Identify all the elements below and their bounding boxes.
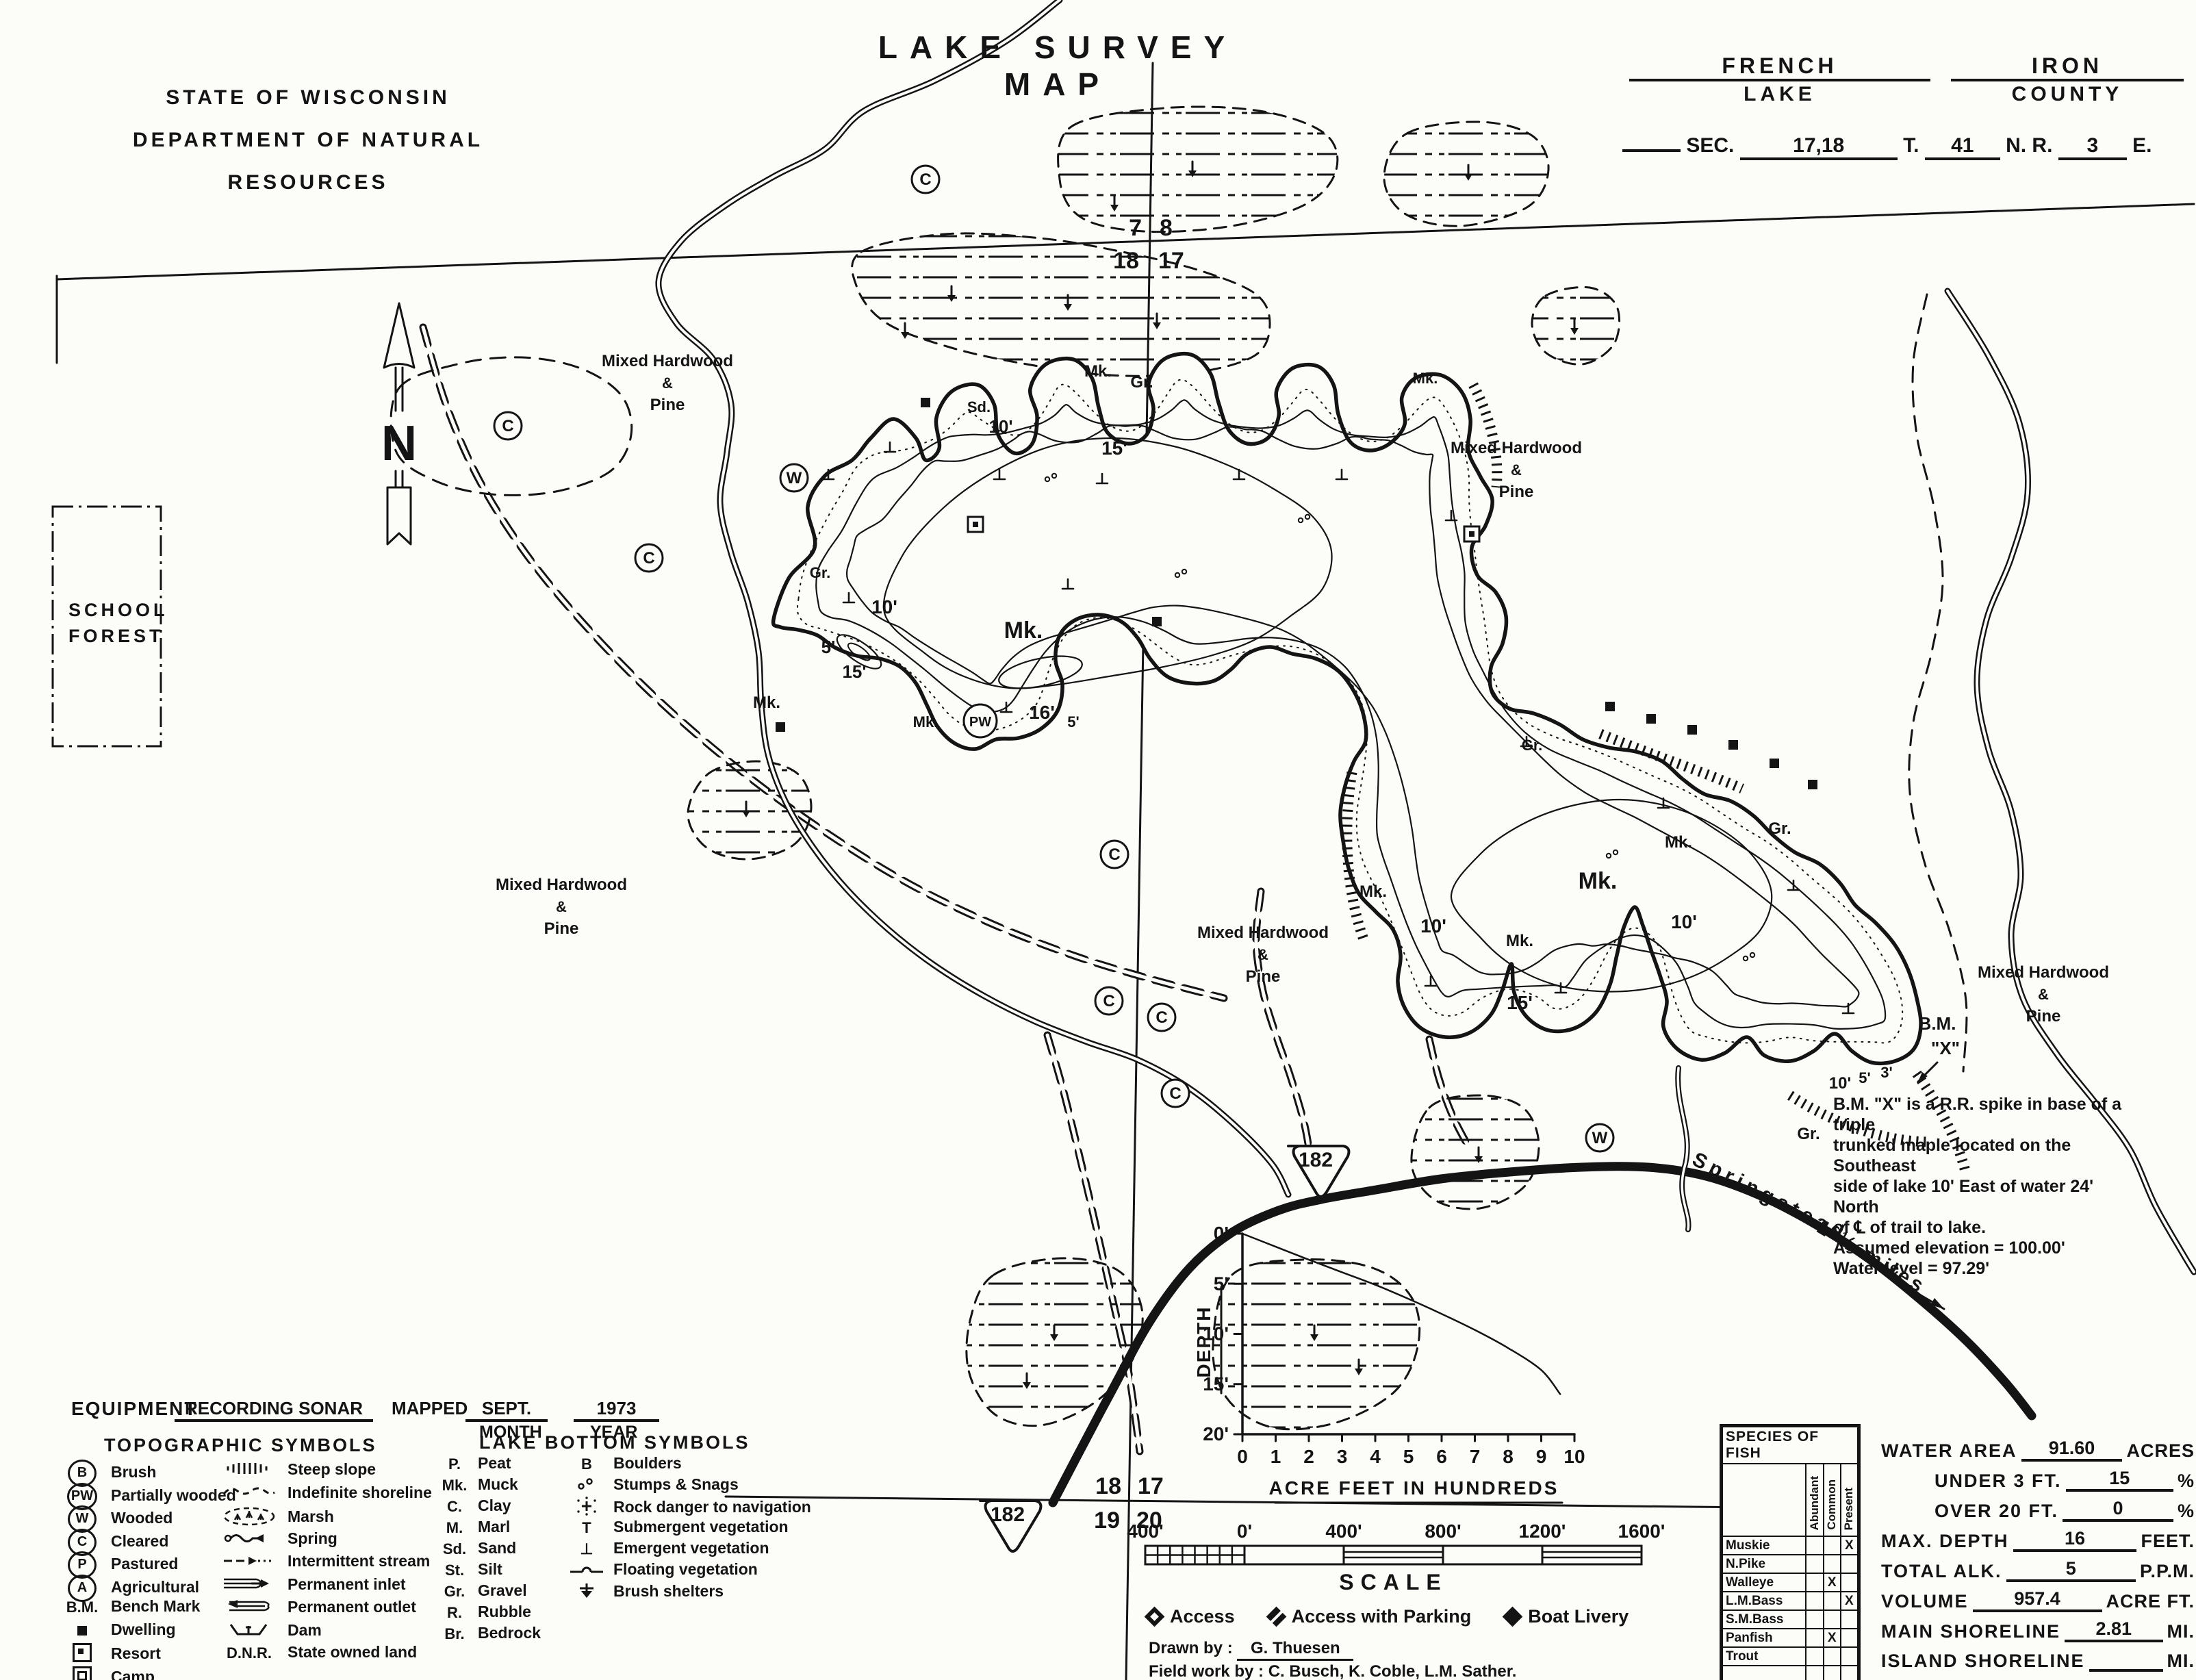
page-title: LAKE SURVEY MAP <box>832 29 1284 103</box>
topo-legend-item: Intermittent stream <box>218 1551 430 1573</box>
spot-label: Mk. <box>1359 882 1387 901</box>
fish-mark <box>1841 1610 1858 1629</box>
stat-label: WATER AREA <box>1881 1440 2017 1462</box>
lake-statistics: WATER AREA91.60ACRESUNDER 3 FT.15%OVER 2… <box>1881 1438 2195 1678</box>
fish-name: Trout <box>1722 1647 1806 1666</box>
landcover-letter: C <box>1169 1084 1181 1103</box>
fish-mark <box>1841 1573 1858 1592</box>
legend-label: Brush shelters <box>613 1582 724 1600</box>
topo-legend-item: Resort <box>60 1643 161 1665</box>
fish-row: MuskieX <box>1722 1536 1858 1555</box>
boulders-icon: B <box>567 1455 607 1473</box>
fish-table-title: SPECIES OF FISH <box>1722 1427 1858 1464</box>
dwelling-icon <box>1808 780 1817 789</box>
bottom-legend-item: C.Clay <box>438 1497 511 1518</box>
indefinite-shoreline-icon <box>218 1483 281 1505</box>
legend-label: Clay <box>478 1497 511 1514</box>
bottom-legend-item: Stumps & Snags <box>567 1475 739 1497</box>
lake-shoreline <box>774 354 1921 1064</box>
section-lines <box>726 1497 1752 1507</box>
benchmark-note-line: B.M. "X" is a R.R. spike in base of a tr… <box>1833 1094 2141 1135</box>
equipment-value: RECORDING SONAR <box>175 1398 373 1422</box>
camp-icon <box>60 1666 104 1680</box>
bottom-legend-item: Sd.Sand <box>438 1539 516 1561</box>
fish-mark <box>1841 1555 1858 1573</box>
r-value: 3 <box>2058 134 2127 160</box>
access-legend-item: Access <box>1145 1606 1235 1627</box>
drawn-by-label: Drawn by : <box>1149 1639 1233 1657</box>
highway-shield-number: 182 <box>1299 1149 1333 1171</box>
spot-label: Mk. <box>1579 868 1618 894</box>
marsh-area <box>1213 1260 1420 1429</box>
spot-label: 5' <box>821 637 836 657</box>
boat-livery-diamond <box>1503 1607 1523 1627</box>
spot-label: Mk. <box>753 693 780 712</box>
stat-label: VOLUME <box>1881 1591 1969 1612</box>
dwelling-icon <box>776 722 785 732</box>
stat-label: OVER 20 FT. <box>1935 1501 2058 1522</box>
bottom-legend-item: Mk.Muck <box>438 1475 518 1497</box>
scale-bar-label: 0' <box>1237 1520 1252 1542</box>
forest-label: Mixed Hardwood <box>1451 439 1582 457</box>
dnr-icon: D.N.R. <box>218 1644 281 1662</box>
permanent-inlet-icon <box>218 1575 281 1596</box>
stat-row: TOTAL ALK.5P.P.M. <box>1881 1558 2195 1582</box>
legend-label: Floating vegetation <box>613 1560 758 1578</box>
stat-value: 957.4 <box>1973 1588 2102 1612</box>
brush-shelters-icon <box>567 1581 607 1603</box>
t-value: 41 <box>1925 134 2000 160</box>
stat-unit: MI. <box>2167 1621 2195 1642</box>
fish-row: Trout <box>1722 1647 1858 1666</box>
stat-unit: MI. <box>2167 1651 2195 1672</box>
fish-mark <box>1824 1536 1841 1555</box>
spot-label: Mk. <box>1665 833 1692 852</box>
forest-label: & <box>1257 946 1268 963</box>
fish-mark <box>1806 1629 1823 1647</box>
fish-mark <box>1806 1592 1823 1610</box>
fish-row: S.M.Bass <box>1722 1610 1858 1629</box>
legend-label: Sand <box>478 1539 516 1557</box>
forest-label: & <box>556 898 567 915</box>
agency-line1: STATE OF WISCONSIN <box>68 77 548 119</box>
resort-icon <box>1469 531 1474 537</box>
topo-legend-item: Indefinite shoreline <box>218 1483 432 1505</box>
bench-mark-icon: B.M. <box>60 1598 104 1616</box>
county-word: COUNTY <box>1951 83 2184 106</box>
topo-legend-title: TOPOGRAPHIC SYMBOLS <box>104 1435 377 1456</box>
stat-label: MAIN SHORELINE <box>1881 1621 2060 1642</box>
bm-map-label: "X" <box>1931 1038 1960 1058</box>
benchmark-note-line: trunked maple located on the Southeast <box>1833 1135 2141 1176</box>
stat-row: MAX. DEPTH16FEET. <box>1881 1528 2195 1552</box>
scale-bar-label: 400' <box>1127 1520 1163 1542</box>
map-canvas: 0'5'10'15'20'012345678910ACRE FEET IN HU… <box>0 0 2196 1680</box>
spot-label: 5' <box>1067 713 1079 730</box>
lake-name: FRENCH <box>1629 53 1930 81</box>
spot-label: 5' <box>1859 1069 1870 1086</box>
legend-label: Peat <box>478 1454 511 1472</box>
stat-row: OVER 20 FT.0% <box>1935 1498 2195 1522</box>
forest-label: & <box>662 374 673 392</box>
fish-empty-row <box>1722 1666 1858 1680</box>
abbr-icon: C. <box>438 1497 471 1516</box>
topo-legend-item: Permanent inlet <box>218 1575 406 1596</box>
topo-legend-item: Camp <box>60 1666 155 1680</box>
fish-mark <box>1841 1647 1858 1666</box>
legend-label: Camp <box>111 1668 155 1680</box>
section-number: 18 <box>1113 248 1139 274</box>
resort-icon <box>60 1643 104 1666</box>
benchmark-note-line: of ℄ of trail to lake. <box>1833 1217 2141 1238</box>
legend-label: Permanent outlet <box>288 1598 416 1616</box>
bottom-legend-item: Floating vegetation <box>567 1560 758 1582</box>
topo-legend-item: D.N.R.State owned land <box>218 1643 417 1665</box>
section-number: 8 <box>1160 215 1173 241</box>
abbr-icon: P. <box>438 1455 471 1473</box>
marsh-area <box>967 1258 1142 1426</box>
dwelling-icon <box>1770 759 1779 768</box>
marsh-arrow-icon <box>901 332 909 339</box>
lake-and-contours <box>774 354 1921 1064</box>
forest-label: Mixed Hardwood <box>1978 963 2109 982</box>
legend-label: Resort <box>111 1644 161 1662</box>
abbr-icon: Gr. <box>438 1582 471 1601</box>
credits: Drawn by : G. Thuesen Field work by : C.… <box>1149 1638 1628 1680</box>
fish-mark: X <box>1841 1536 1858 1555</box>
access-label: Access with Parking <box>1292 1606 1472 1627</box>
stat-unit: FEET. <box>2141 1531 2195 1552</box>
spot-label: 10' <box>1829 1074 1851 1093</box>
benchmark-note: B.M. "X" is a R.R. spike in base of a tr… <box>1833 1094 2141 1279</box>
stat-label: TOTAL ALK. <box>1881 1561 2002 1582</box>
forest-label: Mixed Hardwood <box>602 352 733 370</box>
sec-label: SEC. <box>1686 134 1734 157</box>
forest-label: & <box>2038 986 2049 1003</box>
fish-mark <box>1824 1647 1841 1666</box>
lake-word: LAKE <box>1629 83 1930 106</box>
agency-line2: DEPARTMENT OF NATURAL RESOURCES <box>68 119 548 204</box>
stat-value: 2.81 <box>2065 1618 2162 1642</box>
spot-label: Mk. <box>913 713 939 730</box>
abbr-icon: Br. <box>438 1625 471 1643</box>
legend-label: Muck <box>478 1475 518 1493</box>
bottom-legend-item: Brush shelters <box>567 1581 724 1603</box>
stat-row: MAIN SHORELINE2.81MI. <box>1881 1618 2195 1642</box>
stat-unit: % <box>2178 1471 2195 1492</box>
chart-y-tick: 0' <box>1214 1223 1229 1244</box>
spot-label: Mk. <box>1084 362 1112 381</box>
drawn-by-value: G. Thuesen <box>1237 1638 1353 1661</box>
section-number: 19 <box>1094 1507 1120 1533</box>
section-number: 17 <box>1158 248 1184 274</box>
stat-unit: % <box>2178 1501 2195 1522</box>
legend-label: Boulders <box>613 1454 682 1472</box>
bm-map-label: B.M. <box>1919 1013 1956 1034</box>
stat-row: ISLAND SHORELINEMI. <box>1881 1649 2195 1672</box>
access-legend: AccessAccess with ParkingBoat Livery <box>1145 1606 1665 1629</box>
fish-column-header: Present <box>1842 1486 1856 1531</box>
fish-table: SPECIES OF FISH AbundantCommonPresentMus… <box>1720 1424 1861 1680</box>
stat-unit: ACRE FT. <box>2106 1591 2195 1612</box>
legend-label: Rock danger to navigation <box>613 1498 811 1516</box>
fish-column-header: Abundant <box>1808 1475 1822 1531</box>
legend-label: Submergent vegetation <box>613 1518 789 1536</box>
access-parking-diamond <box>1266 1607 1286 1627</box>
bottom-legend-item: St.Silt <box>438 1560 502 1582</box>
forest-label: Mixed Hardwood <box>496 876 627 894</box>
landcover-letter: PW <box>969 715 991 730</box>
spot-label: 10' <box>988 416 1012 437</box>
landcover-letter: W <box>1592 1129 1608 1147</box>
topo-legend-item: BBrush <box>60 1460 156 1481</box>
stat-row: VOLUME957.4ACRE FT. <box>1881 1588 2195 1612</box>
topo-legend-item: Permanent outlet <box>218 1597 416 1619</box>
county-name: IRON <box>1951 53 2184 81</box>
marsh-icon <box>218 1505 281 1530</box>
t-label: T. <box>1903 134 1919 157</box>
year-value: 1973 <box>574 1398 659 1422</box>
nr-label: N. R. <box>2006 134 2052 157</box>
access-diamond <box>1145 1607 1165 1627</box>
spot-label: Gr. <box>1768 819 1791 838</box>
benchmark-note-line: Assumed elevation = 100.00' <box>1833 1238 2141 1258</box>
topo-legend-item: Steep slope <box>218 1460 376 1481</box>
fish-name: L.M.Bass <box>1722 1592 1806 1610</box>
fish-name: Walleye <box>1722 1573 1806 1592</box>
topo-legend-item: Dwelling <box>60 1620 176 1642</box>
fish-row: N.Pike <box>1722 1555 1858 1573</box>
legend-label: Marl <box>478 1518 510 1536</box>
topo-legend-item: Spring <box>218 1529 337 1551</box>
dwelling-icon <box>921 398 930 407</box>
access-legend-item: Boat Livery <box>1503 1606 1629 1627</box>
chart-x-label: ACRE FEET IN HUNDREDS <box>1269 1477 1559 1499</box>
legend-label: Cleared <box>111 1532 168 1550</box>
fish-column-header: Common <box>1825 1478 1839 1531</box>
spot-label: Mk. <box>1413 370 1438 387</box>
legend-label: Intermittent stream <box>288 1552 430 1570</box>
forest-label: & <box>1511 461 1522 479</box>
bottom-legend-item: ⊥Emergent vegetation <box>567 1539 769 1561</box>
stat-value <box>2089 1649 2163 1672</box>
legend-label: Silt <box>478 1560 502 1578</box>
fish-name: S.M.Bass <box>1722 1610 1806 1629</box>
legend-label: Gravel <box>478 1581 527 1599</box>
scale-bar-label: 800' <box>1425 1520 1461 1542</box>
bottom-legend-item: Gr.Gravel <box>438 1581 527 1603</box>
stat-value: 15 <box>2066 1468 2173 1492</box>
legend-label: State owned land <box>288 1643 417 1661</box>
forest-label: Pine <box>544 919 579 938</box>
spot-label: 16' <box>1029 702 1055 723</box>
north-arrow-icon <box>396 471 403 487</box>
permanent-outlet-icon <box>218 1597 281 1619</box>
resort-icon <box>973 522 978 527</box>
mapped-label: MAPPED <box>392 1398 468 1419</box>
legend-label: Wooded <box>111 1509 173 1527</box>
legend-label: Indefinite shoreline <box>288 1484 432 1501</box>
stat-value: 0 <box>2063 1498 2173 1522</box>
fish-mark <box>1824 1555 1841 1573</box>
fish-mark <box>1841 1629 1858 1647</box>
spot-label: 10' <box>1420 915 1446 937</box>
legend-label: Bench Mark <box>111 1597 200 1615</box>
dwelling-icon <box>1646 714 1656 724</box>
fish-name: N.Pike <box>1722 1555 1806 1573</box>
legend-label: Dam <box>288 1621 322 1639</box>
access-label: Access <box>1170 1606 1235 1627</box>
landcover-letter: C <box>643 549 654 568</box>
abbr-icon: R. <box>438 1603 471 1622</box>
marsh-area <box>1058 107 1338 232</box>
stat-label: UNDER 3 FT. <box>1935 1471 2062 1492</box>
spring-icon <box>218 1529 281 1551</box>
dwelling-icon <box>60 1621 104 1640</box>
legend-label: Rubble <box>478 1603 531 1620</box>
scale-caption: SCALE <box>1339 1570 1447 1594</box>
section-number: 17 <box>1138 1473 1164 1499</box>
fish-mark <box>1806 1555 1823 1573</box>
fish-header-row: AbundantCommonPresent <box>1722 1464 1858 1536</box>
topo-legend-item: WWooded <box>60 1505 173 1527</box>
legend-label: Marsh <box>288 1507 334 1525</box>
section-number: 7 <box>1129 215 1142 241</box>
chart-x-tick: 6 <box>1436 1446 1447 1467</box>
access-legend-item: Access with Parking <box>1266 1606 1472 1627</box>
landcover-letter: C <box>919 170 931 189</box>
scale-bar-label: 1200' <box>1519 1520 1566 1542</box>
benchmark-note-line: Water level = 97.29' <box>1833 1258 2141 1279</box>
stat-unit: ACRES <box>2126 1440 2195 1462</box>
field-work-value: C. Busch, K. Coble, L.M. Sather. <box>1268 1661 1517 1680</box>
rock-danger-icon <box>567 1497 607 1520</box>
scale-bar-label: 1600' <box>1618 1520 1665 1542</box>
section-township-line: SEC. 17,18 T. 41 N. R. 3 E. <box>1622 134 2196 160</box>
legend-label: Permanent inlet <box>288 1575 406 1593</box>
legend-label: Spring <box>288 1529 337 1547</box>
spot-label: 15' <box>1101 437 1127 459</box>
sec-value: 17,18 <box>1740 134 1898 160</box>
lake-survey-map-sheet: 0'5'10'15'20'012345678910ACRE FEET IN HU… <box>0 0 2196 1680</box>
fish-mark <box>1806 1647 1823 1666</box>
fish-mark <box>1806 1610 1823 1629</box>
bottom-legend-item: M.Marl <box>438 1518 510 1540</box>
chart-x-tick: 9 <box>1536 1446 1547 1467</box>
stat-value: 91.60 <box>2021 1438 2123 1462</box>
month-value: SEPT. <box>465 1398 548 1422</box>
school-forest-label: SCHOOL <box>68 600 168 620</box>
marsh-area <box>852 233 1270 376</box>
legend-label: Steep slope <box>288 1460 376 1478</box>
dwelling-icon <box>1152 617 1162 626</box>
topo-legend-item: CCleared <box>60 1529 168 1551</box>
north-arrow-icon <box>384 303 414 368</box>
chart-x-tick: 7 <box>1470 1446 1481 1467</box>
north-arrow-letter: N <box>381 416 417 471</box>
abbr-icon: Mk. <box>438 1476 471 1494</box>
topo-legend-item: PPastured <box>60 1551 178 1573</box>
marsh-area <box>1412 1095 1539 1209</box>
stat-label: MAX. DEPTH <box>1881 1531 2009 1552</box>
topo-legend-item: AAgricultural <box>60 1575 199 1596</box>
fish-mark <box>1824 1610 1841 1629</box>
spot-label: Mk. <box>1506 932 1533 950</box>
legend-label: Bedrock <box>478 1624 541 1642</box>
fish-mark: X <box>1824 1573 1841 1592</box>
legend-label: Pastured <box>111 1555 178 1573</box>
bottom-legend-item: Br.Bedrock <box>438 1624 541 1646</box>
topo-legend-item: Marsh <box>218 1505 334 1527</box>
bottom-legend-item: R.Rubble <box>438 1603 531 1625</box>
chart-x-tick: 3 <box>1337 1446 1348 1467</box>
chart-x-tick: 5 <box>1403 1446 1414 1467</box>
chart-y-tick: 20' <box>1203 1423 1229 1444</box>
section-number: 18 <box>1095 1473 1121 1499</box>
forest-label: Pine <box>650 396 685 414</box>
topo-legend-item: PWPartially wooded <box>60 1483 236 1505</box>
fish-row: PanfishX <box>1722 1629 1858 1647</box>
legend-label: Brush <box>111 1463 156 1481</box>
fish-mark <box>1806 1536 1823 1555</box>
stat-value: 16 <box>2013 1528 2137 1552</box>
fish-mark <box>1824 1592 1841 1610</box>
benchmark-note-line: side of lake 10' East of water 24' North <box>1833 1176 2141 1217</box>
spot-label: Gr. <box>810 564 831 581</box>
landcover-letter: C <box>1108 845 1120 864</box>
abbr-icon: M. <box>438 1518 471 1537</box>
forest-label: Mixed Hardwood <box>1197 924 1329 942</box>
fish-mark <box>1806 1573 1823 1592</box>
spot-label: Mk. <box>1004 618 1043 644</box>
fish-mark: X <box>1841 1592 1858 1610</box>
chart-x-tick: 2 <box>1303 1446 1314 1467</box>
submergent-icon: T <box>567 1518 607 1537</box>
fish-row: WalleyeX <box>1722 1573 1858 1592</box>
spot-label: Gr. <box>1130 373 1153 392</box>
chart-x-tick: 10 <box>1563 1446 1585 1467</box>
landcover-letter: C <box>1156 1008 1167 1027</box>
school-forest-label: FOREST <box>68 626 164 646</box>
spot-label: 3' <box>1880 1064 1892 1081</box>
abbr-icon: Sd. <box>438 1540 471 1558</box>
dam-icon <box>218 1620 281 1642</box>
spot-label: 10' <box>871 596 897 618</box>
spot-label: 10' <box>1671 911 1697 932</box>
marsh-area <box>1532 287 1620 364</box>
bottom-legend-item: TSubmergent vegetation <box>567 1518 789 1540</box>
landcover-letter: C <box>1103 992 1114 1010</box>
forest-label: Pine <box>1499 483 1534 501</box>
stat-row: WATER AREA91.60ACRES <box>1881 1438 2195 1462</box>
spot-label: 15' <box>1507 992 1533 1013</box>
topo-legend-item: Dam <box>218 1620 322 1642</box>
landcover-letter: C <box>502 417 513 435</box>
scale-bar-label: 400' <box>1325 1520 1362 1542</box>
legend-label: Emergent vegetation <box>613 1539 769 1557</box>
dwelling-icon <box>1605 702 1615 711</box>
emergent-icon: ⊥ <box>567 1540 607 1558</box>
stat-value: 5 <box>2006 1558 2136 1582</box>
stumps-snags-icon <box>567 1475 607 1496</box>
stat-row: UNDER 3 FT.15% <box>1935 1468 2195 1492</box>
landcover-letter: W <box>787 469 802 487</box>
highway-shield-number: 182 <box>991 1503 1025 1526</box>
chart-x-tick: 8 <box>1503 1446 1514 1467</box>
steep-slope-icon <box>218 1460 281 1481</box>
spot-label: 15' <box>842 661 866 682</box>
fish-row: L.M.BassX <box>1722 1592 1858 1610</box>
